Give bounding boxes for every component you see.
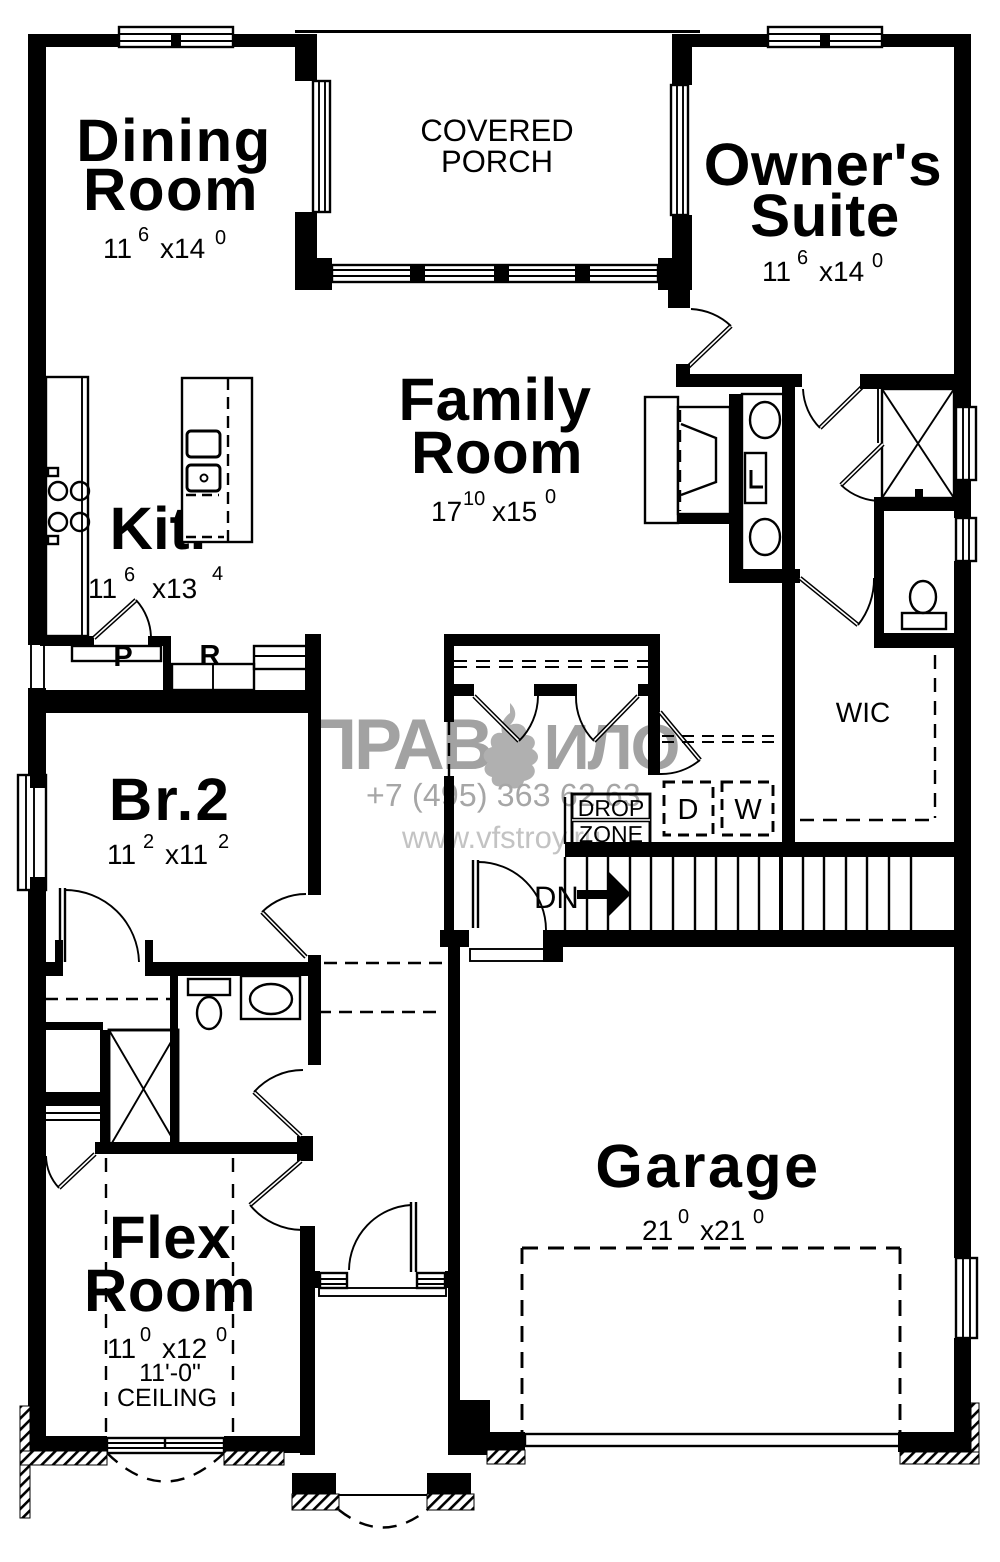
svg-text:Room: Room: [411, 419, 583, 486]
svg-text:WIC: WIC: [836, 697, 890, 728]
svg-text:D: D: [678, 794, 699, 826]
svg-text:PORCH: PORCH: [441, 144, 553, 179]
svg-text:DN: DN: [534, 880, 579, 915]
svg-text:2: 2: [143, 831, 154, 853]
svg-text:6: 6: [797, 247, 808, 269]
svg-text:11: 11: [107, 1333, 136, 1364]
svg-text:6: 6: [138, 224, 149, 246]
svg-text:11: 11: [762, 256, 791, 287]
svg-text:2: 2: [218, 831, 229, 853]
svg-text:x13: x13: [152, 573, 197, 604]
svg-text:Garage: Garage: [595, 1132, 820, 1200]
svg-text:DROP: DROP: [578, 795, 644, 821]
svg-text:COVERED: COVERED: [420, 113, 573, 148]
svg-text:P: P: [113, 641, 132, 673]
svg-text:x14: x14: [819, 256, 864, 287]
svg-text:Room: Room: [83, 156, 259, 223]
svg-text:11'-0": 11'-0": [139, 1359, 201, 1387]
svg-text:0: 0: [216, 1324, 227, 1346]
svg-text:0: 0: [140, 1324, 151, 1346]
svg-text:11: 11: [107, 839, 136, 870]
svg-text:CEILING: CEILING: [117, 1384, 217, 1412]
svg-text:x21: x21: [700, 1215, 745, 1246]
svg-text:0: 0: [872, 250, 883, 272]
svg-text:17: 17: [431, 496, 462, 527]
svg-text:11: 11: [88, 573, 117, 604]
svg-text:Br.2: Br.2: [109, 766, 231, 833]
svg-text:x14: x14: [160, 233, 205, 264]
svg-text:R: R: [200, 640, 221, 672]
svg-text:6: 6: [124, 564, 135, 586]
svg-text:W: W: [734, 794, 762, 826]
svg-text:Suite: Suite: [750, 182, 900, 249]
svg-text:x15: x15: [492, 496, 537, 527]
svg-text:0: 0: [753, 1206, 764, 1228]
svg-text:11: 11: [103, 233, 132, 264]
svg-text:0: 0: [545, 486, 556, 508]
svg-text:ПРАВ: ПРАВ: [305, 705, 490, 785]
svg-text:0: 0: [215, 227, 226, 249]
svg-text:x11: x11: [165, 839, 208, 870]
svg-text:4: 4: [212, 563, 223, 585]
svg-text:0: 0: [678, 1206, 689, 1228]
svg-text:10: 10: [463, 488, 485, 510]
svg-text:21: 21: [642, 1215, 673, 1246]
svg-text:Room: Room: [84, 1257, 256, 1324]
